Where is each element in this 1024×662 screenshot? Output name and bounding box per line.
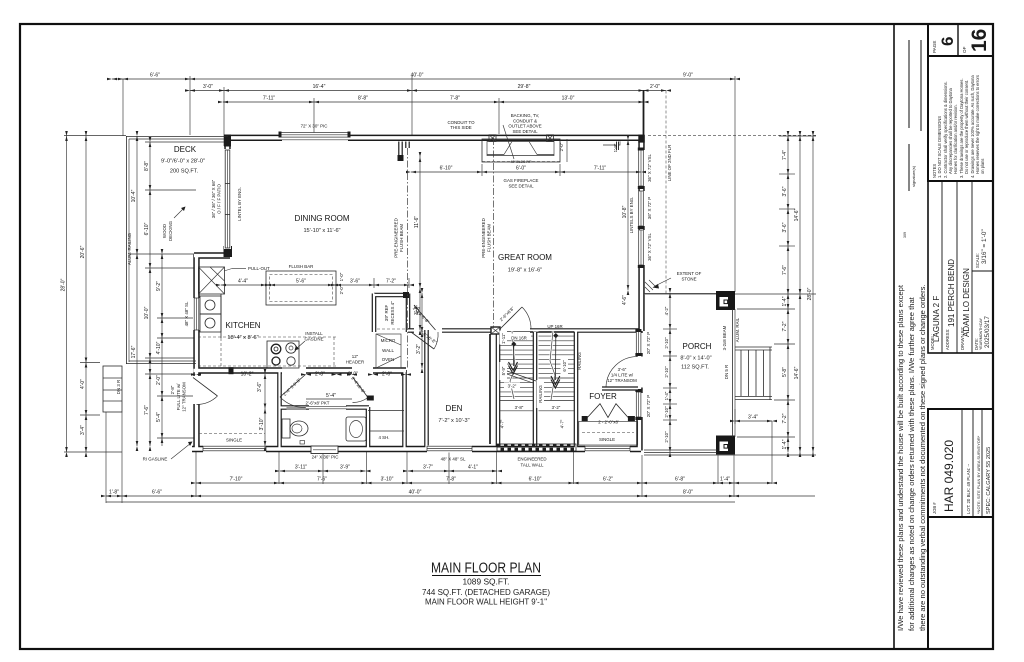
svg-text:MAIN FLOOR PLAN: MAIN FLOOR PLAN — [431, 561, 541, 577]
svg-text:8'-0": 8'-0" — [683, 490, 693, 496]
svg-text:1'-11": 1'-11" — [501, 333, 506, 344]
svg-text:Homes for clarification and/or: Homes for clarification and/or revision. — [953, 104, 958, 174]
svg-text:UP 16R: UP 16R — [547, 324, 562, 329]
svg-text:3'-6": 3'-6" — [257, 382, 263, 392]
svg-text:3'-7": 3'-7" — [423, 465, 433, 471]
svg-text:7'-11": 7'-11" — [594, 166, 607, 172]
svg-text:36" X 72" VSL: 36" X 72" VSL — [647, 154, 652, 182]
svg-text:1'-0": 1'-0" — [339, 272, 344, 281]
svg-text:GREAT ROOM: GREAT ROOM — [498, 253, 552, 262]
svg-text:11'-6": 11'-6" — [414, 216, 420, 229]
svg-text:36" X 72" VSL: 36" X 72" VSL — [647, 233, 652, 261]
svg-text:CONDUIT &: CONDUIT & — [513, 118, 537, 123]
svg-text:10'-4": 10'-4" — [131, 189, 137, 202]
svg-text:12": 12" — [352, 354, 359, 359]
svg-text:200 SQ.FT.: 200 SQ.FT. — [170, 169, 199, 175]
svg-text:OF: OF — [962, 46, 967, 53]
svg-text:7'-8": 7'-8" — [450, 96, 460, 102]
svg-text:16'-4": 16'-4" — [313, 84, 326, 90]
svg-text:6'-10": 6'-10" — [562, 360, 567, 372]
svg-text:4'-0": 4'-0" — [80, 379, 86, 389]
svg-text:8'-8": 8'-8" — [144, 161, 150, 171]
svg-text:19'-8" x 16'-6": 19'-8" x 16'-6" — [508, 268, 542, 274]
svg-text:12" TRANSOM: 12" TRANSOM — [607, 378, 637, 383]
svg-text:2'-0": 2'-0" — [650, 84, 660, 90]
svg-text:3'-4": 3'-4" — [80, 425, 86, 435]
svg-text:PRE-ENGINEERED: PRE-ENGINEERED — [481, 218, 486, 258]
svg-text:Do not use or reproduce them w: Do not use or reproduce them without the… — [964, 80, 969, 174]
svg-text:36" / 36" / 36" X 66": 36" / 36" / 36" X 66" — [211, 179, 216, 218]
svg-text:DN 5 R: DN 5 R — [724, 365, 729, 379]
svg-text:on plans: on plans — [980, 159, 985, 174]
svg-text:MICRO: MICRO — [381, 338, 396, 343]
svg-text:2'-0": 2'-0" — [156, 375, 162, 385]
svg-text:7'-2": 7'-2" — [782, 321, 788, 331]
svg-text:DEN: DEN — [446, 404, 463, 413]
svg-text:2'-0": 2'-0" — [559, 142, 564, 151]
svg-text:ADDRESS:: ADDRESS: — [945, 329, 950, 350]
svg-text:ENGINEERED: ENGINEERED — [517, 457, 546, 462]
svg-text:2'-8": 2'-8" — [315, 372, 325, 378]
svg-text:36" X 72" P: 36" X 72" P — [647, 197, 652, 219]
svg-text:191 PERCH BEND: 191 PERCH BEND — [947, 259, 956, 327]
svg-text:6'-0": 6'-0" — [516, 166, 526, 172]
svg-text:LAGUNA 2 F: LAGUNA 2 F — [932, 296, 941, 342]
svg-text:LINTELS BY ENG.: LINTELS BY ENG. — [629, 197, 634, 234]
svg-text:3'-6": 3'-6" — [618, 367, 627, 372]
svg-text:2'-10": 2'-10" — [664, 406, 669, 418]
svg-text:8'-0" x 14'-0": 8'-0" x 14'-0" — [680, 356, 711, 362]
svg-text:7'-2": 7'-2" — [386, 279, 396, 285]
svg-text:PORCH: PORCH — [683, 342, 712, 351]
svg-text:39" REF: 39" REF — [384, 304, 389, 321]
svg-text:3'-2": 3'-2" — [552, 405, 561, 410]
svg-text:FLUSH BEAM: FLUSH BEAM — [399, 224, 404, 252]
svg-text:4'-7": 4'-7" — [560, 419, 565, 428]
svg-text:1089 SQ.FT.: 1089 SQ.FT. — [463, 578, 510, 587]
svg-text:RAILING: RAILING — [538, 385, 543, 403]
svg-text:72" X 30" PIC: 72" X 30" PIC — [301, 124, 328, 129]
svg-text:SINGLE: SINGLE — [226, 438, 242, 443]
svg-text:2'-6": 2'-6" — [382, 372, 392, 378]
svg-text:29'-8": 29'-8" — [518, 84, 531, 90]
svg-text:TALL WALL: TALL WALL — [520, 463, 544, 468]
svg-text:DINING ROOM: DINING ROOM — [294, 214, 349, 223]
svg-text:5'-9": 5'-9" — [501, 366, 506, 375]
svg-text:7'-2" x 10'-3": 7'-2" x 10'-3" — [438, 418, 469, 424]
svg-text:5'-6": 5'-6" — [296, 279, 306, 285]
svg-text:4'-10": 4'-10" — [156, 341, 162, 354]
svg-text:YEAR/MONTH/DAY: YEAR/MONTH/DAY — [979, 317, 983, 350]
svg-text:2'-0": 2'-0" — [339, 285, 344, 294]
svg-text:1'-4": 1'-4" — [664, 391, 669, 400]
svg-text:14'-6": 14'-6" — [794, 366, 800, 379]
svg-text:3'-6": 3'-6" — [782, 222, 788, 232]
svg-text:6'-6": 6'-6" — [152, 490, 162, 496]
svg-text:4'-7": 4'-7" — [500, 419, 505, 428]
svg-text:18'-4" x 8'-6": 18'-4" x 8'-6" — [227, 335, 258, 341]
svg-text:4'-4": 4'-4" — [238, 279, 248, 285]
svg-text:3'-11": 3'-11" — [295, 465, 308, 471]
svg-text:RI GASLINE: RI GASLINE — [143, 457, 168, 462]
svg-text:DN 3 R: DN 3 R — [116, 380, 121, 394]
svg-text:20" X 72" P: 20" X 72" P — [646, 332, 651, 354]
svg-text:40'-0": 40'-0" — [409, 490, 422, 496]
svg-text:WALL: WALL — [382, 348, 394, 353]
svg-text:MAIN FLOOR WALL HEIGHT 9'-1": MAIN FLOOR WALL HEIGHT 9'-1" — [425, 597, 547, 607]
svg-text:9'-2": 9'-2" — [156, 281, 162, 291]
svg-text:744 SQ.FT. (DETACHED GARAGE): 744 SQ.FT. (DETACHED GARAGE) — [422, 587, 550, 597]
svg-text:PAGE: PAGE — [932, 41, 937, 53]
svg-text:STONE: STONE — [681, 277, 696, 282]
svg-text:24" X 36" PIC: 24" X 36" PIC — [312, 455, 339, 460]
svg-text:there are no outstanding verba: there are no outstanding verbal commitme… — [918, 284, 927, 631]
svg-text:2 - 2'-0"x8': 2 - 2'-0"x8' — [598, 420, 619, 425]
svg-text:6'-10": 6'-10" — [529, 477, 542, 483]
svg-text:28'-0": 28'-0" — [807, 287, 813, 300]
svg-text:I/We have reviewed these plans: I/We have reviewed these plans and under… — [896, 284, 905, 631]
svg-text:2'-10": 2'-10" — [664, 366, 669, 378]
svg-text:9'-0"/6'-0" x 28'-0": 9'-0"/6'-0" x 28'-0" — [161, 159, 205, 165]
svg-text:8'-8": 8'-8" — [358, 96, 368, 102]
svg-text:ALUM. RAILING: ALUM. RAILING — [127, 232, 132, 265]
svg-text:SEE DETAIL: SEE DETAIL — [508, 184, 534, 189]
svg-text:5'-8": 5'-8" — [782, 367, 788, 377]
svg-text:3'-2": 3'-2" — [508, 384, 517, 389]
svg-text:LINE OF 2ND FLR: LINE OF 2ND FLR — [667, 145, 672, 182]
svg-text:5'-4": 5'-4" — [326, 393, 336, 399]
svg-text:FOYER: FOYER — [589, 392, 617, 401]
svg-text:17'-6": 17'-6" — [131, 345, 137, 358]
svg-text:BACKING, TV,: BACKING, TV, — [511, 113, 540, 118]
svg-text:6'-2": 6'-2" — [603, 477, 613, 483]
svg-text:INSTALL: INSTALL — [305, 331, 323, 336]
svg-text:4'-2": 4'-2" — [664, 306, 669, 315]
svg-text:48" X 48" SL: 48" X 48" SL — [184, 301, 189, 326]
svg-text:LOT: 20 BLK: 49 PLAN: --: LOT: 20 BLK: 49 PLAN: -- — [966, 463, 971, 514]
svg-text:signature(s): signature(s) — [911, 165, 916, 187]
svg-text:KITCHEN: KITCHEN — [225, 321, 260, 330]
svg-text:309: 309 — [903, 232, 907, 238]
svg-text:40'-0": 40'-0" — [411, 73, 424, 79]
svg-text:FULL LITE w/: FULL LITE w/ — [176, 383, 181, 410]
svg-text:7'-6": 7'-6" — [782, 265, 788, 275]
svg-text:48" X 48" SL: 48" X 48" SL — [441, 457, 466, 462]
svg-text:3'-0": 3'-0" — [203, 84, 213, 90]
svg-text:6'-10": 6'-10" — [144, 222, 150, 235]
svg-text:3'-10": 3'-10" — [381, 477, 394, 483]
svg-text:3/16" = 1'-0": 3/16" = 1'-0" — [981, 229, 988, 264]
svg-text:1'-4": 1'-4" — [720, 477, 730, 483]
svg-text:RAILING: RAILING — [577, 352, 582, 370]
svg-text:THIS SIDE: THIS SIDE — [450, 125, 472, 130]
svg-text:3'-10": 3'-10" — [259, 417, 265, 430]
svg-text:10'-2": 10'-2" — [241, 372, 254, 378]
svg-text:7'-4": 7'-4" — [782, 150, 788, 160]
svg-text:15'-10" x 11'-6": 15'-10" x 11'-6" — [303, 228, 340, 234]
svg-text:9'-0": 9'-0" — [683, 73, 693, 79]
svg-text:2'-10": 2'-10" — [664, 337, 669, 349]
svg-text:3'-6": 3'-6" — [350, 279, 360, 285]
svg-text:FLUSH BEAM: FLUSH BEAM — [487, 224, 492, 252]
svg-text:OVEN: OVEN — [382, 357, 394, 362]
svg-text:10'-0": 10'-0" — [144, 306, 150, 319]
svg-text:HAR 049.020: HAR 049.020 — [942, 440, 956, 512]
svg-text:ADAM LO DESIGN: ADAM LO DESIGN — [962, 268, 971, 337]
svg-text:28'-0": 28'-0" — [61, 278, 67, 291]
svg-text:3'-2": 3'-2" — [416, 344, 422, 354]
svg-text:ALUM. RAIL: ALUM. RAIL — [735, 317, 740, 342]
svg-text:O / F / F PATIO: O / F / F PATIO — [217, 183, 222, 213]
svg-text:7'-8": 7'-8" — [446, 477, 456, 483]
svg-text:GAS FIREPLACE: GAS FIREPLACE — [504, 178, 539, 183]
svg-text:1/4 LITE w/: 1/4 LITE w/ — [611, 373, 634, 378]
svg-text:1. DO NOT SCALE DIMENSIONS: 1. DO NOT SCALE DIMENSIONS — [937, 116, 942, 178]
svg-text:4 SH.: 4 SH. — [379, 435, 390, 440]
svg-text:DECK: DECK — [174, 145, 197, 154]
svg-text:*NOTE: SITE PLAN BY AREA SURVE: *NOTE: SITE PLAN BY AREA SURVEYOR* — [976, 435, 981, 514]
svg-text:7'-11": 7'-11" — [263, 96, 276, 102]
svg-text:HEADER: HEADER — [346, 360, 364, 365]
svg-text:6'-8": 6'-8" — [675, 477, 685, 483]
svg-text:7'-2": 7'-2" — [782, 413, 788, 423]
svg-text:6'-10": 6'-10" — [440, 166, 453, 172]
svg-text:SPEC: CALGARY S5 2025: SPEC: CALGARY S5 2025 — [986, 447, 992, 514]
svg-text:7'-10": 7'-10" — [230, 477, 243, 483]
svg-text:SCALE:: SCALE: — [975, 253, 980, 268]
svg-text:14'-6": 14'-6" — [794, 208, 800, 221]
svg-text:1'-8": 1'-8" — [109, 490, 119, 496]
svg-text:42" ELEC F/P: 42" ELEC F/P — [511, 160, 533, 164]
svg-text:SINGLE: SINGLE — [599, 437, 615, 442]
svg-text:6: 6 — [938, 37, 957, 46]
svg-text:3'-8": 3'-8" — [515, 405, 524, 410]
svg-text:112 SQ.FT.: 112 SQ.FT. — [681, 365, 709, 371]
svg-text:DN 16R: DN 16R — [511, 336, 527, 341]
svg-text:7'-6": 7'-6" — [144, 405, 150, 415]
svg-text:PRE-ENGINEERED: PRE-ENGINEERED — [394, 218, 399, 258]
svg-text:3'-6": 3'-6" — [782, 186, 788, 196]
svg-text:20" X 72" P: 20" X 72" P — [646, 395, 651, 417]
svg-text:GASLINE: GASLINE — [304, 337, 323, 342]
svg-text:7'-6": 7'-6" — [317, 477, 327, 483]
svg-text:JOB #: JOB # — [932, 502, 937, 514]
svg-text:13'-0": 13'-0" — [562, 96, 575, 102]
svg-text:OUTLET ABOVE: OUTLET ABOVE — [508, 124, 541, 129]
svg-text:4'-1": 4'-1" — [468, 465, 478, 471]
svg-text:16: 16 — [968, 29, 991, 52]
svg-text:2025/03/17: 2025/03/17 — [984, 316, 991, 348]
svg-text:2'-6"x8' PKT: 2'-6"x8' PKT — [306, 401, 330, 406]
svg-text:10'-8": 10'-8" — [622, 205, 628, 218]
svg-text:2'-8": 2'-8" — [170, 385, 175, 394]
svg-text:1'-8": 1'-8" — [613, 143, 618, 152]
svg-text:PULL-OUT: PULL-OUT — [248, 266, 270, 271]
svg-text:EXTENT OF: EXTENT OF — [677, 271, 702, 276]
svg-text:DECKING: DECKING — [168, 220, 173, 241]
svg-text:LINTEL BY ENG.: LINTEL BY ENG. — [237, 187, 242, 221]
svg-text:3'-9": 3'-9" — [340, 465, 350, 471]
svg-text:3'-4": 3'-4" — [748, 415, 758, 421]
svg-text:6'-6": 6'-6" — [150, 73, 160, 79]
svg-text:5'-4": 5'-4" — [156, 412, 162, 422]
svg-text:20'-6": 20'-6" — [80, 245, 86, 258]
svg-text:SEE DETAIL: SEE DETAIL — [512, 129, 538, 134]
svg-text:WOOD: WOOD — [162, 224, 167, 238]
svg-text:2'-10": 2'-10" — [664, 431, 669, 443]
svg-text:for additional changes as note: for additional changes as noted on chang… — [907, 296, 916, 631]
svg-text:RECESS 4": RECESS 4" — [390, 301, 395, 325]
svg-text:3-2x8 BEAM: 3-2x8 BEAM — [722, 325, 727, 350]
svg-text:4'-6": 4'-6" — [622, 295, 628, 305]
svg-text:12" TRANSOM: 12" TRANSOM — [182, 382, 187, 412]
svg-text:FLUSH BAR: FLUSH BAR — [289, 264, 314, 269]
